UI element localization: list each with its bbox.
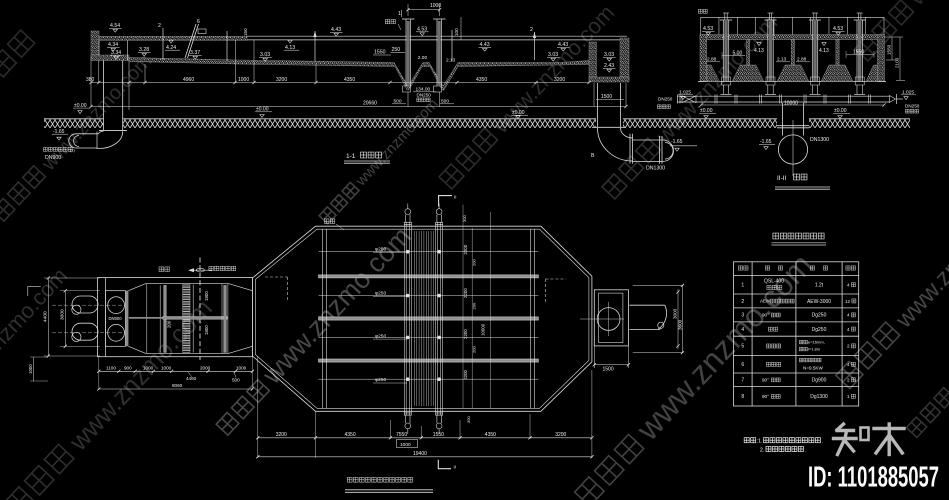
svg-text:1500: 1500 xyxy=(603,367,614,373)
svg-text:300: 300 xyxy=(462,215,467,222)
svg-text:1500: 1500 xyxy=(601,94,612,100)
svg-text:2: 2 xyxy=(530,27,533,33)
svg-text:100: 100 xyxy=(454,28,459,36)
svg-text:II-II: II-II xyxy=(777,175,787,182)
svg-text:φ250: φ250 xyxy=(375,377,386,383)
svg-text:3000: 3000 xyxy=(60,309,66,320)
svg-text:200: 200 xyxy=(167,320,172,328)
svg-text:3600: 3600 xyxy=(678,319,683,330)
svg-text:90°: 90° xyxy=(762,377,769,382)
svg-text:2: 2 xyxy=(158,23,161,29)
svg-text:1: 1 xyxy=(398,11,401,17)
svg-text:1000: 1000 xyxy=(161,366,172,371)
svg-text:900: 900 xyxy=(124,366,132,371)
svg-text:II: II xyxy=(454,465,456,470)
svg-text:4: 4 xyxy=(847,283,850,288)
svg-text:3000: 3000 xyxy=(673,308,678,319)
svg-text:3200: 3200 xyxy=(276,432,287,438)
svg-text:DN1300: DN1300 xyxy=(646,166,665,172)
svg-text:l=1.8m: l=1.8m xyxy=(808,347,821,352)
svg-text:1000: 1000 xyxy=(28,364,33,374)
svg-text:4: 4 xyxy=(847,313,850,318)
svg-text:8: 8 xyxy=(741,394,744,400)
svg-text:12: 12 xyxy=(845,299,851,304)
svg-text:2: 2 xyxy=(847,378,850,383)
svg-text:4400: 4400 xyxy=(43,311,49,322)
svg-text:DN250: DN250 xyxy=(905,104,920,109)
svg-text:Dg900: Dg900 xyxy=(812,378,827,384)
svg-text:QSL-400: QSL-400 xyxy=(764,279,784,285)
svg-text:2100: 2100 xyxy=(895,57,900,68)
svg-text:φ250: φ250 xyxy=(375,333,386,339)
svg-text:500: 500 xyxy=(232,378,240,383)
svg-text:4: 4 xyxy=(741,327,744,333)
svg-text:-1.65: -1.65 xyxy=(671,139,683,145)
svg-text:DN250: DN250 xyxy=(417,93,432,98)
svg-text:φ250: φ250 xyxy=(375,291,386,297)
svg-text:3200: 3200 xyxy=(276,77,287,83)
svg-text:2200: 2200 xyxy=(463,369,468,379)
svg-text:(1): (1) xyxy=(70,148,76,153)
svg-text:AEW: AEW xyxy=(760,299,771,304)
svg-text:8060: 8060 xyxy=(172,383,183,388)
svg-text:2200: 2200 xyxy=(463,288,468,298)
svg-text:2.13: 2.13 xyxy=(446,58,456,64)
svg-text:DN250: DN250 xyxy=(658,96,673,101)
svg-text::1.: :1. xyxy=(757,439,763,445)
svg-text:1000: 1000 xyxy=(236,366,247,371)
svg-text:1: 1 xyxy=(741,283,744,289)
svg-text:1-1: 1-1 xyxy=(346,153,356,160)
svg-text:DN900: DN900 xyxy=(45,155,61,161)
svg-text:20660: 20660 xyxy=(363,101,377,107)
svg-text:2000: 2000 xyxy=(200,366,211,371)
svg-text:4350: 4350 xyxy=(345,432,356,438)
svg-text:Dg1300: Dg1300 xyxy=(810,394,828,400)
svg-text:4.13: 4.13 xyxy=(819,48,829,54)
svg-text:1: 1 xyxy=(847,394,850,399)
svg-text:4350: 4350 xyxy=(485,432,496,438)
svg-text:300: 300 xyxy=(466,416,471,423)
svg-text:Dg250: Dg250 xyxy=(812,327,827,333)
svg-text:3: 3 xyxy=(741,313,744,319)
svg-text:7550: 7550 xyxy=(396,432,407,438)
svg-text:4: 4 xyxy=(847,327,850,332)
svg-text:DN900: DN900 xyxy=(109,316,123,321)
svg-text:3200: 3200 xyxy=(554,77,565,83)
svg-text:.: . xyxy=(805,447,807,453)
svg-text:2: 2 xyxy=(741,299,744,305)
svg-text:5: 5 xyxy=(741,344,744,350)
svg-text:2: 2 xyxy=(847,344,850,349)
svg-text:.: . xyxy=(822,439,824,445)
svg-text:380: 380 xyxy=(86,77,95,83)
svg-text:6: 6 xyxy=(197,19,200,25)
svg-text:2.00: 2.00 xyxy=(418,55,428,61)
svg-text:1.2t: 1.2t xyxy=(815,283,824,289)
svg-text:e=16mm,: e=16mm, xyxy=(808,340,825,345)
svg-text:4350: 4350 xyxy=(476,77,487,83)
svg-text:Dg250: Dg250 xyxy=(812,313,827,319)
svg-text:B: B xyxy=(591,153,595,159)
svg-text:1100: 1100 xyxy=(106,366,116,371)
svg-text:1550: 1550 xyxy=(433,432,444,438)
svg-text:II: II xyxy=(454,195,456,200)
svg-text:AEW-3000: AEW-3000 xyxy=(807,299,831,305)
svg-text:2200: 2200 xyxy=(463,329,468,339)
svg-text:1000: 1000 xyxy=(238,77,249,83)
svg-text:DN1300: DN1300 xyxy=(810,137,829,143)
svg-text:4960: 4960 xyxy=(183,77,194,83)
svg-text:90°: 90° xyxy=(762,394,769,399)
svg-text:90°: 90° xyxy=(762,313,769,318)
svg-text:6: 6 xyxy=(741,362,744,368)
svg-text:φ250: φ250 xyxy=(375,247,386,253)
svg-text:1550: 1550 xyxy=(374,50,386,56)
svg-text:1800: 1800 xyxy=(204,291,209,301)
svg-text:4: 4 xyxy=(847,362,850,367)
svg-text:ID: 1101885057: ID: 1101885057 xyxy=(808,462,939,494)
svg-text:19400: 19400 xyxy=(413,451,427,457)
svg-text:1800: 1800 xyxy=(204,325,209,335)
svg-text:1000: 1000 xyxy=(143,366,154,371)
svg-text:10000: 10000 xyxy=(481,323,486,336)
svg-text:4460: 4460 xyxy=(186,376,197,381)
svg-text:1550: 1550 xyxy=(887,44,892,55)
svg-text:2.: 2. xyxy=(760,447,765,453)
svg-text:1000: 1000 xyxy=(430,3,441,9)
svg-text:250: 250 xyxy=(392,47,401,53)
svg-text:N=9.5KW: N=9.5KW xyxy=(803,366,823,371)
svg-text:150: 150 xyxy=(243,28,248,36)
svg-text:7: 7 xyxy=(741,378,744,384)
svg-text:3200: 3200 xyxy=(555,432,566,438)
svg-text:10000: 10000 xyxy=(784,101,798,107)
svg-text:2200: 2200 xyxy=(463,244,468,254)
svg-text:4.13: 4.13 xyxy=(754,48,764,54)
svg-text:4350: 4350 xyxy=(344,77,355,83)
svg-text:1000: 1000 xyxy=(400,442,411,448)
